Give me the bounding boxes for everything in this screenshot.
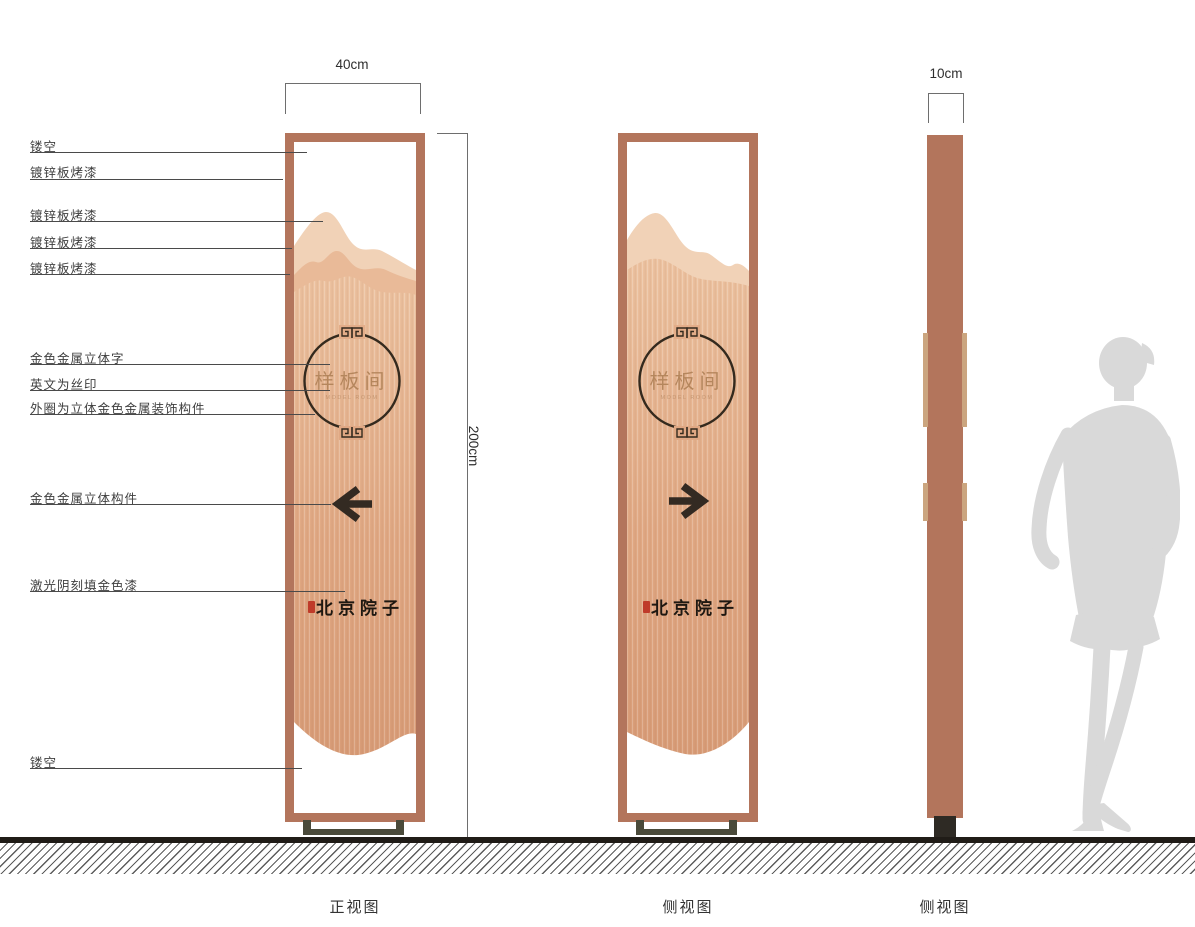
front-width-dimension-label: 40cm [285,57,419,72]
design-sheet: 镂空 镀锌板烤漆 镀锌板烤漆 镀锌板烤漆 镀锌板烤漆 金色金属立体字 英文为丝印… [0,0,1195,927]
side-english-subtitle-text: MODEL ROOM [661,395,714,401]
height-dimension-tick [437,133,467,134]
front-brand-group: 北京院子 [308,598,404,618]
front-english-subtitle-text: MODEL ROOM [326,395,379,401]
callout-line-gold-component [30,504,331,505]
front-seal-icon [308,601,315,613]
profile-view-column [927,135,963,818]
side-view-sign-face: 样板间 MODEL ROOM 北京院子 [627,142,749,813]
callout-line-outer-ring [30,414,315,415]
profile-width-dimension-bracket [928,93,964,123]
side-base-bar [636,829,737,835]
callout-line-galvanized-2 [30,221,323,222]
front-fret-bottom-icon [339,426,365,440]
front-fret-top-icon [339,325,365,339]
side-brand-group: 北京院子 [643,598,739,618]
side-fret-top-icon [674,325,700,339]
side-seal-icon [643,601,650,613]
height-dimension-line [467,133,468,837]
profile-circle-relief-left [923,333,928,427]
side-brand-text: 北京院子 [651,598,739,618]
ground-hatch [0,843,1195,874]
callout-line-hollow-top [30,152,307,153]
front-brand-text: 北京院子 [316,598,404,618]
callout-line-galvanized-4 [30,274,290,275]
callout-line-silkscreen [30,390,330,391]
height-dimension-label: 200cm [465,423,481,469]
profile-arrow-relief-left [923,483,928,521]
front-base-bar [303,829,404,835]
callout-line-laser-engraved [30,591,345,592]
side-view-caption: 侧视图 [618,896,758,917]
side-fret-bottom-icon [674,426,700,440]
human-silhouette [1030,333,1180,838]
side-room-name-text: 样板间 [650,370,725,393]
callout-line-galvanized-3 [30,248,292,249]
callout-line-galvanized-1 [30,179,283,180]
profile-width-dimension-label: 10cm [921,66,971,81]
profile-base-block [934,816,956,838]
profile-view-caption: 侧视图 [875,896,1015,917]
front-view-sign-face: 样板间 MODEL ROOM 北京院子 [294,142,416,813]
profile-arrow-relief-right [962,483,967,521]
callout-line-gold-letters [30,364,330,365]
front-width-dimension-bracket [285,83,421,114]
front-view-caption: 正视图 [285,896,425,917]
callout-line-hollow-bottom [30,768,302,769]
profile-circle-relief-right [962,333,967,427]
